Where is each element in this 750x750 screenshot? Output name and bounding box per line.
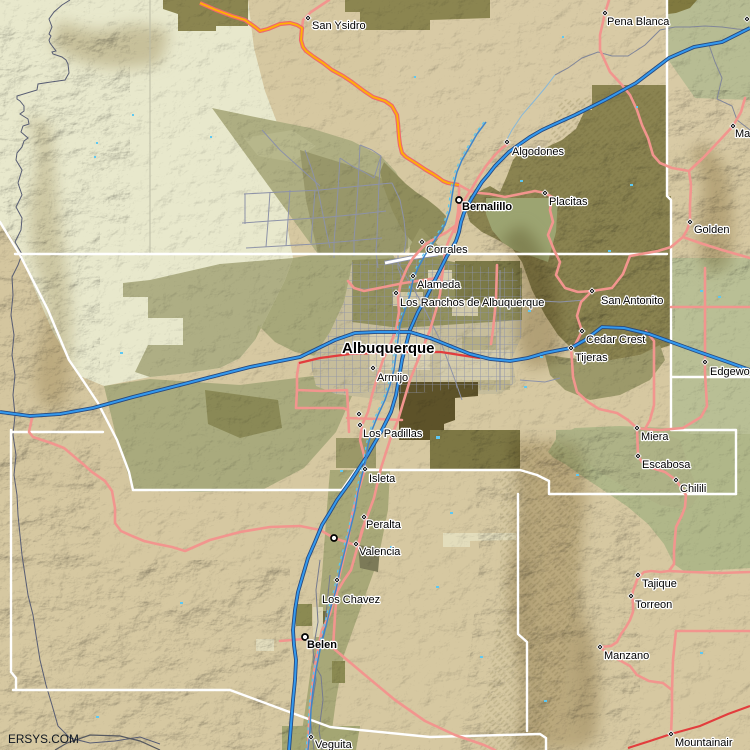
svg-text:Golden: Golden — [694, 224, 729, 236]
svg-text:Alameda: Alameda — [417, 279, 461, 291]
svg-text:Placitas: Placitas — [549, 196, 588, 208]
svg-text:Isleta: Isleta — [369, 473, 396, 485]
svg-text:Pena Blanca: Pena Blanca — [607, 16, 670, 28]
svg-text:Edgewood: Edgewood — [710, 366, 750, 378]
svg-text:San Antonito: San Antonito — [601, 295, 663, 307]
svg-text:Manzano: Manzano — [604, 650, 649, 662]
svg-text:ERSYS.COM: ERSYS.COM — [8, 732, 79, 746]
svg-text:Tijeras: Tijeras — [575, 352, 608, 364]
svg-text:Tajique: Tajique — [642, 578, 677, 590]
svg-text:Escabosa: Escabosa — [642, 459, 691, 471]
svg-text:Valencia: Valencia — [359, 546, 401, 558]
svg-text:Chilili: Chilili — [680, 483, 706, 495]
svg-text:Cedar Crest: Cedar Crest — [586, 334, 645, 346]
svg-text:Corrales: Corrales — [426, 244, 468, 256]
svg-text:Algodones: Algodones — [512, 146, 564, 158]
svg-text:Bernalillo: Bernalillo — [462, 201, 512, 213]
svg-text:Belen: Belen — [307, 639, 337, 651]
svg-text:Miera: Miera — [641, 431, 669, 443]
svg-text:Los Ranchos de Albuquerque: Los Ranchos de Albuquerque — [400, 297, 544, 309]
svg-text:San Ysidro: San Ysidro — [312, 20, 366, 32]
svg-text:Veguita: Veguita — [315, 739, 353, 750]
svg-text:Torreon: Torreon — [635, 599, 672, 611]
svg-text:Los Chavez: Los Chavez — [322, 594, 380, 606]
svg-text:Mad: Mad — [735, 128, 750, 140]
svg-text:Peralta: Peralta — [366, 519, 402, 531]
svg-text:Los Padillas: Los Padillas — [363, 428, 423, 440]
svg-text:Albuquerque: Albuquerque — [342, 340, 435, 357]
svg-text:Armijo: Armijo — [377, 372, 408, 384]
svg-text:Mountainair: Mountainair — [675, 737, 733, 749]
